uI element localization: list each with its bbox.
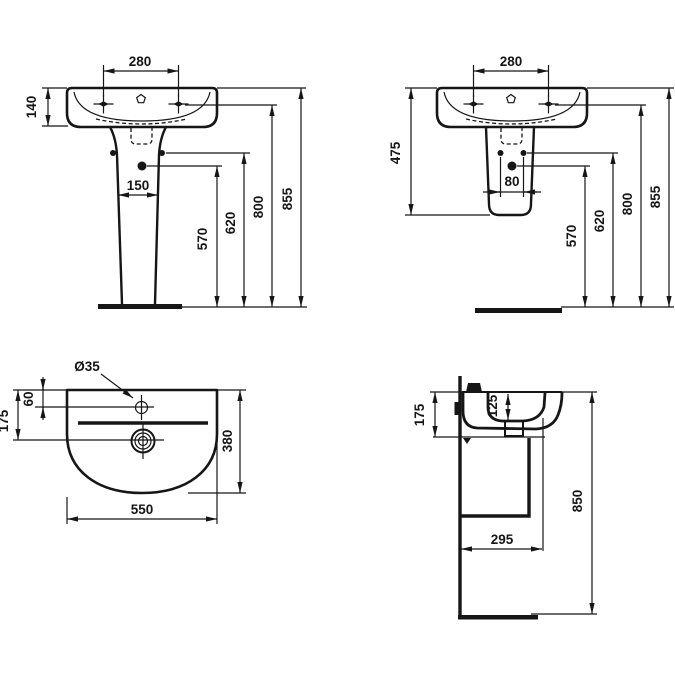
overflow-marker: [137, 95, 146, 103]
dim-label: 850: [570, 490, 585, 513]
dim-570: 570: [517, 166, 590, 307]
floor-line: [458, 615, 538, 620]
dim-label: 175: [412, 403, 427, 426]
dim-label: 800: [620, 193, 635, 216]
dim-label: 550: [131, 502, 154, 517]
dim-label: 80: [504, 174, 519, 189]
trap-shroud-outline: [460, 438, 529, 516]
spec-sheet: 280 140 150 570 620 800: [0, 0, 675, 675]
dim-label: 150: [127, 178, 150, 193]
overflow-marker: [507, 95, 516, 103]
dim-rim-height: 850: [570, 392, 592, 614]
dim-pedestal-width: 150: [118, 178, 158, 195]
drain-hole: [132, 424, 155, 459]
tap-hole-marker-left: [464, 95, 484, 114]
dim-label: 570: [564, 225, 579, 248]
pedestal-base: [98, 304, 182, 309]
view-front-full-pedestal: 280 140 150 570 620 800: [24, 54, 307, 309]
dim-label: 855: [280, 187, 295, 210]
dim-bowl-depth: 125: [485, 394, 508, 420]
dim-800: 800: [555, 105, 646, 307]
trap-cover-hidden: [131, 128, 152, 144]
view-plan: Ø35 60 175 380 550: [0, 359, 246, 524]
fixing-pointer: [463, 438, 471, 444]
dim-label: 570: [195, 228, 210, 251]
dim-label: 380: [220, 430, 235, 453]
dim-back-to-tap: 60: [13, 377, 154, 420]
dim-label: 280: [129, 54, 152, 69]
technical-drawing: 280 140 150 570 620 800: [0, 0, 675, 675]
dim-label: 175: [0, 409, 11, 432]
trap-cover-hidden: [501, 128, 522, 144]
dim-label: 800: [251, 196, 266, 219]
dim-wall-to-trap-front: 295: [461, 532, 542, 549]
dim-label: 140: [24, 96, 39, 119]
dim-label: 125: [485, 394, 500, 417]
semi-pedestal-outline: [486, 127, 534, 215]
dim-label: Ø35: [74, 359, 100, 374]
view-side-section: 175 125 295 850: [412, 376, 597, 620]
floor-line: [475, 308, 562, 313]
rear-upstand: [466, 383, 482, 392]
fixing-hole-right: [159, 150, 165, 156]
dim-label: 60: [21, 391, 36, 406]
dim-width: 550: [67, 444, 217, 524]
tap-hole-marker-right: [539, 95, 559, 114]
basin-section-outer: [463, 393, 562, 429]
basin-inner-rim: [444, 92, 580, 121]
tap-hole-marker-right: [169, 95, 189, 114]
basin-inner-rim: [74, 92, 210, 121]
dim-label: 280: [500, 54, 523, 69]
dim-800: 800: [185, 105, 277, 307]
fixing-hole-right: [521, 150, 527, 156]
dim-label: 855: [648, 185, 663, 208]
dim-label: 295: [491, 532, 514, 547]
siphon-hole: [138, 162, 147, 171]
dim-rim-to-underside: 175: [412, 392, 435, 437]
siphon-hole: [508, 162, 517, 171]
view-front-semi-pedestal: 280 475 80 570 620 800: [388, 54, 674, 313]
wall-fixing: [455, 402, 459, 415]
dim-tap-centres: 280: [104, 54, 179, 97]
dim-tap-centres: 280: [474, 54, 549, 97]
dim-label: 620: [592, 210, 607, 233]
dim-rim-to-underside: 140: [24, 88, 68, 126]
fixing-hole-left: [498, 150, 504, 156]
dim-rim-to-pedestal-bottom: 475: [388, 88, 490, 215]
dim-label: 620: [223, 212, 238, 235]
dim-tap-hole-diameter: Ø35: [74, 359, 133, 398]
dim-label: 475: [388, 141, 403, 164]
tap-hole-marker-left: [94, 95, 114, 114]
fixing-hole-left: [110, 150, 116, 156]
